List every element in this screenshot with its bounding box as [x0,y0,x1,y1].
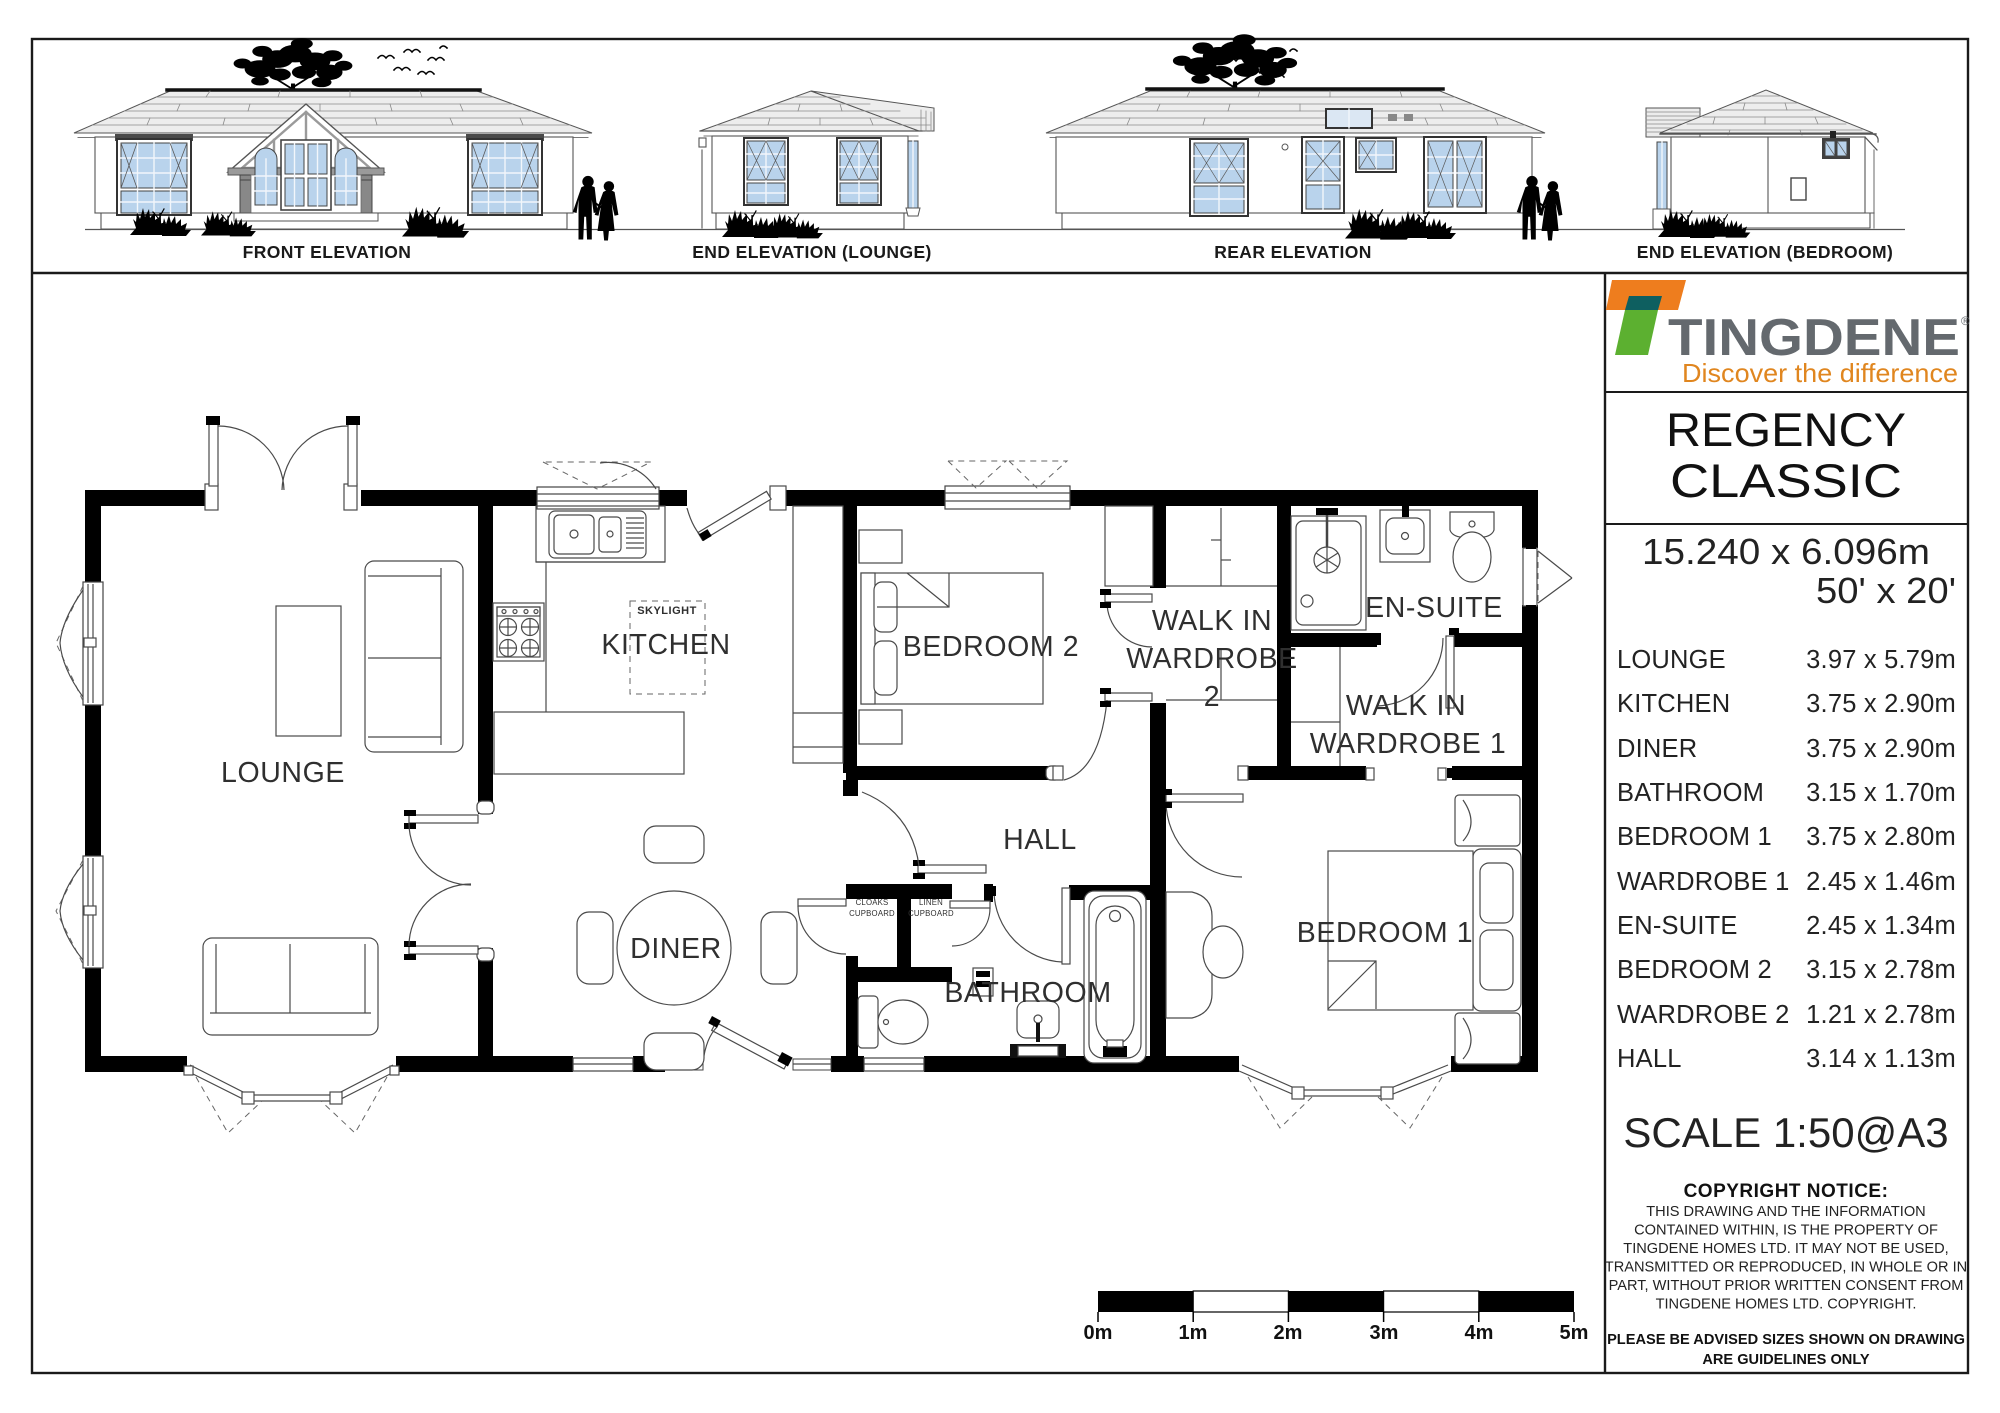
svg-text:WALK IN: WALK IN [1346,690,1466,722]
svg-text:WARDROBE: WARDROBE [1126,643,1298,675]
svg-text:COPYRIGHT NOTICE:: COPYRIGHT NOTICE: [1684,1181,1889,1202]
svg-text:2: 2 [1204,681,1220,713]
svg-text:BEDROOM 2: BEDROOM 2 [1617,956,1772,984]
svg-text:PART, WITHOUT PRIOR WRITTEN CO: PART, WITHOUT PRIOR WRITTEN CONSENT FROM [1609,1278,1964,1294]
svg-text:FRONT ELEVATION: FRONT ELEVATION [243,242,412,262]
svg-text:5m: 5m [1560,1322,1589,1344]
svg-text:HALL: HALL [1003,824,1077,856]
svg-text:LOUNGE: LOUNGE [1617,646,1726,674]
svg-text:2.45 x 1.34m: 2.45 x 1.34m [1806,912,1956,940]
svg-text:CONTAINED WITHIN, IS THE PROPE: CONTAINED WITHIN, IS THE PROPERTY OF [1634,1223,1938,1239]
svg-text:EN-SUITE: EN-SUITE [1365,592,1503,624]
svg-text:3.75 x 2.80m: 3.75 x 2.80m [1806,823,1956,851]
svg-text:THIS DRAWING AND THE INFORMATI: THIS DRAWING AND THE INFORMATION [1646,1204,1925,1220]
svg-text:ARE GUIDELINES ONLY: ARE GUIDELINES ONLY [1702,1352,1870,1368]
svg-text:3.75 x 2.90m: 3.75 x 2.90m [1806,735,1956,763]
svg-text:END ELEVATION (LOUNGE): END ELEVATION (LOUNGE) [692,242,932,262]
svg-text:TINGDENE HOMES LTD. IT MAY NOT: TINGDENE HOMES LTD. IT MAY NOT BE USED, [1623,1241,1948,1257]
svg-text:BEDROOM 1: BEDROOM 1 [1297,917,1473,949]
svg-text:3.15 x 1.70m: 3.15 x 1.70m [1806,779,1956,807]
svg-text:BEDROOM 1: BEDROOM 1 [1617,823,1772,851]
svg-text:TRANSMITTED OR REPRODUCED, IN: TRANSMITTED OR REPRODUCED, IN WHOLE OR I… [1605,1260,1967,1276]
svg-text:®: ® [1961,314,1970,328]
svg-text:1m: 1m [1179,1322,1208,1344]
svg-text:CLOAKS: CLOAKS [856,898,889,907]
svg-text:3m: 3m [1370,1322,1399,1344]
svg-text:WARDROBE 2: WARDROBE 2 [1617,1001,1790,1029]
svg-text:PLEASE BE ADVISED SIZES SHOWN: PLEASE BE ADVISED SIZES SHOWN ON DRAWING [1607,1332,1965,1348]
svg-text:4m: 4m [1465,1322,1494,1344]
svg-text:1.21 x 2.78m: 1.21 x 2.78m [1806,1001,1956,1029]
svg-text:15.240 x 6.096m: 15.240 x 6.096m [1642,531,1930,572]
svg-text:3.14 x 1.13m: 3.14 x 1.13m [1806,1045,1956,1073]
svg-text:REGENCY: REGENCY [1666,403,1906,456]
svg-text:SKYLIGHT: SKYLIGHT [637,605,697,617]
svg-text:0m: 0m [1084,1322,1113,1344]
svg-text:50' x 20': 50' x 20' [1816,570,1956,611]
svg-text:WARDROBE 1: WARDROBE 1 [1617,868,1790,896]
svg-text:LINEN: LINEN [919,898,943,907]
svg-text:LOUNGE: LOUNGE [221,757,345,789]
svg-text:BATHROOM: BATHROOM [944,977,1111,1009]
svg-text:DINER: DINER [630,933,722,965]
svg-text:WALK IN: WALK IN [1152,605,1272,637]
svg-text:3.15 x 2.78m: 3.15 x 2.78m [1806,956,1956,984]
svg-text:END ELEVATION (BEDROOM): END ELEVATION (BEDROOM) [1637,242,1893,262]
svg-text:SCALE 1:50@A3: SCALE 1:50@A3 [1623,1109,1948,1156]
svg-text:3.75 x 2.90m: 3.75 x 2.90m [1806,690,1956,718]
svg-text:KITCHEN: KITCHEN [601,629,730,661]
svg-text:Discover the difference: Discover the difference [1682,358,1958,388]
svg-text:HALL: HALL [1617,1045,1682,1073]
svg-text:REAR ELEVATION: REAR ELEVATION [1214,242,1372,262]
svg-text:2.45 x 1.46m: 2.45 x 1.46m [1806,868,1956,896]
svg-text:EN-SUITE: EN-SUITE [1617,912,1738,940]
svg-text:2m: 2m [1274,1322,1303,1344]
svg-text:WARDROBE 1: WARDROBE 1 [1310,728,1507,760]
svg-text:TINGDENE HOMES LTD. COPYRIGHT.: TINGDENE HOMES LTD. COPYRIGHT. [1656,1297,1917,1313]
svg-text:BATHROOM: BATHROOM [1617,779,1764,807]
svg-text:CUPBOARD: CUPBOARD [908,909,954,918]
svg-text:CUPBOARD: CUPBOARD [849,909,895,918]
svg-text:KITCHEN: KITCHEN [1617,690,1730,718]
svg-text:BEDROOM 2: BEDROOM 2 [903,631,1079,663]
svg-text:CLASSIC: CLASSIC [1670,454,1902,507]
svg-text:DINER: DINER [1617,735,1697,763]
svg-text:3.97 x 5.79m: 3.97 x 5.79m [1806,646,1956,674]
